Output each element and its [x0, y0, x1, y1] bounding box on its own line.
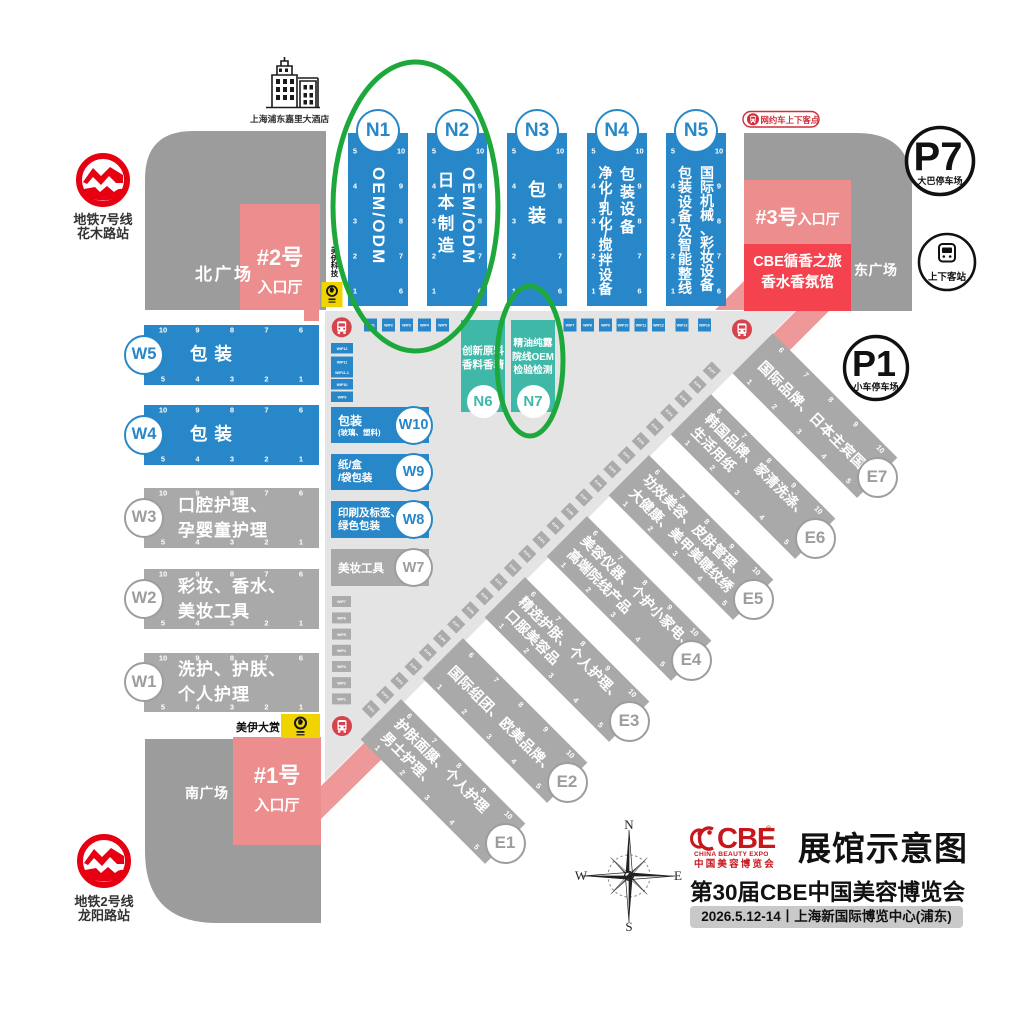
svg-text:小车停车场: 小车停车场	[852, 381, 898, 392]
svg-text:WIP6: WIP6	[337, 617, 346, 621]
svg-text:WIP3: WIP3	[402, 324, 411, 328]
svg-text:WIP1: WIP1	[366, 324, 375, 328]
svg-text:WIP2: WIP2	[337, 681, 346, 685]
svg-text:W: W	[575, 868, 588, 883]
svg-text:WIP11: WIP11	[337, 361, 348, 365]
svg-text:WIP4: WIP4	[420, 324, 429, 328]
svg-text:WIP5: WIP5	[337, 633, 346, 637]
svg-text:P7: P7	[914, 135, 963, 179]
svg-text:CHINA BEAUTY EXPO: CHINA BEAUTY EXPO	[694, 851, 769, 858]
svg-text:WIP13: WIP13	[677, 324, 688, 328]
svg-text:大巴停车场: 大巴停车场	[917, 175, 962, 186]
svg-text:WIP11-1: WIP11-1	[335, 371, 349, 375]
svg-text:N: N	[624, 817, 634, 832]
svg-text:WIP1: WIP1	[337, 698, 346, 702]
svg-text:E: E	[674, 868, 682, 883]
svg-text:WIP7: WIP7	[566, 324, 575, 328]
svg-text:中国美容博览会: 中国美容博览会	[694, 858, 776, 870]
svg-text:WIP4: WIP4	[337, 649, 346, 653]
svg-text:WIP3: WIP3	[337, 665, 346, 669]
svg-text:WIP7: WIP7	[337, 600, 346, 604]
svg-text:S: S	[625, 919, 632, 934]
svg-text:上下客站: 上下客站	[928, 271, 967, 283]
svg-text:WIP11: WIP11	[636, 324, 647, 328]
svg-text:P1: P1	[852, 343, 896, 384]
svg-text:WIP12: WIP12	[337, 347, 348, 351]
svg-text:WIP9: WIP9	[338, 396, 347, 400]
svg-text:®: ®	[766, 825, 772, 833]
svg-text:WIP8: WIP8	[583, 324, 592, 328]
svg-text:WIP2: WIP2	[384, 324, 393, 328]
svg-text:WIP12: WIP12	[653, 324, 664, 328]
svg-text:WIP5: WIP5	[438, 324, 447, 328]
svg-text:WIP10: WIP10	[618, 324, 629, 328]
svg-text:WIP9: WIP9	[601, 324, 610, 328]
svg-text:WIP16: WIP16	[699, 324, 710, 328]
svg-text:WIP10: WIP10	[337, 383, 348, 387]
svg-text:网约车上下客点: 网约车上下客点	[761, 115, 820, 125]
